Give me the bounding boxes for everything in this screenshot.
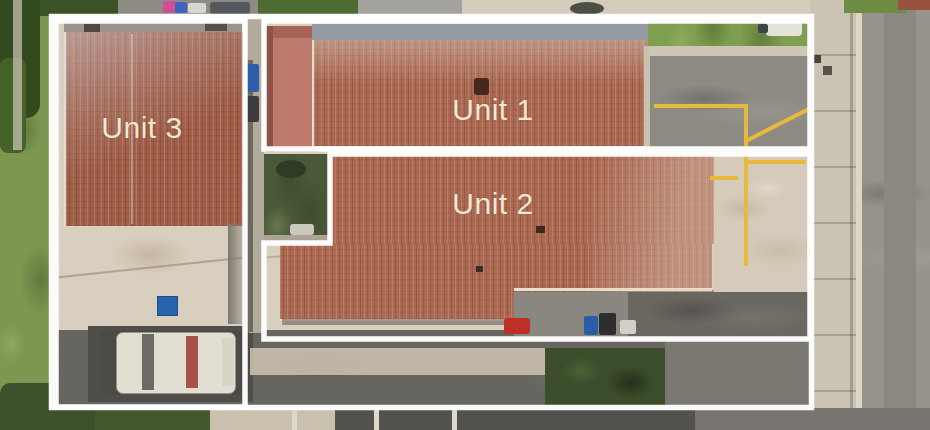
unit-1-boundary bbox=[264, 21, 810, 149]
unit-1-label: Unit 1 bbox=[452, 93, 533, 127]
property-boundary bbox=[52, 17, 812, 408]
aerial-property-photo: Unit 1 Unit 2 Unit 3 bbox=[0, 0, 930, 430]
unit-3-boundary bbox=[56, 21, 245, 407]
unit-2-boundary bbox=[264, 154, 810, 339]
unit-2-label: Unit 2 bbox=[452, 187, 533, 221]
unit-3-label: Unit 3 bbox=[101, 111, 182, 145]
